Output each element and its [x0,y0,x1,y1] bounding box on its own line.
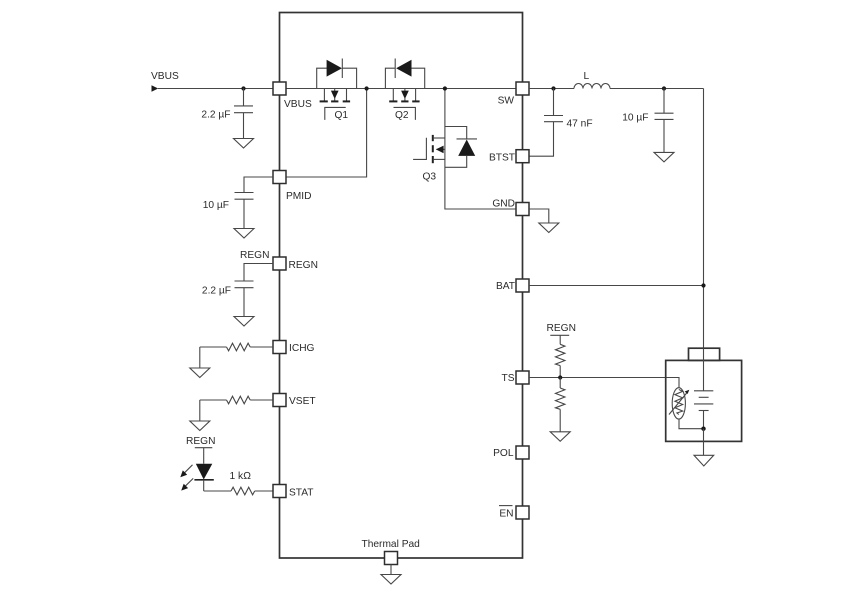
svg-text:REGN: REGN [289,260,318,271]
svg-text:VBUS: VBUS [284,99,312,110]
svg-text:POL: POL [493,448,514,459]
svg-text:2.2 µF: 2.2 µF [201,110,230,121]
svg-text:2.2 µF: 2.2 µF [202,286,231,297]
svg-text:Thermal Pad: Thermal Pad [362,539,421,550]
svg-text:10 µF: 10 µF [203,200,229,211]
svg-text:Q2: Q2 [395,110,409,121]
svg-text:STAT: STAT [289,488,314,499]
svg-text:TS: TS [501,373,514,384]
svg-text:L: L [584,71,590,82]
svg-text:10 µF: 10 µF [622,113,648,124]
svg-text:Q3: Q3 [423,172,437,183]
svg-text:ICHG: ICHG [289,343,315,354]
svg-text:BTST: BTST [489,152,515,163]
svg-text:SW: SW [498,96,515,107]
svg-text:Q1: Q1 [335,110,349,121]
svg-text:REGN: REGN [547,323,576,334]
svg-text:1 kΩ: 1 kΩ [230,471,252,482]
svg-text:GND: GND [492,198,515,209]
svg-text:BAT: BAT [496,281,515,292]
svg-text:REGN: REGN [240,250,269,261]
svg-text:EN: EN [499,509,513,520]
svg-text:PMID: PMID [286,191,311,202]
svg-text:REGN: REGN [186,436,215,447]
svg-text:VBUS: VBUS [151,71,179,82]
svg-text:47 nF: 47 nF [567,119,593,130]
svg-text:VSET: VSET [289,396,316,407]
